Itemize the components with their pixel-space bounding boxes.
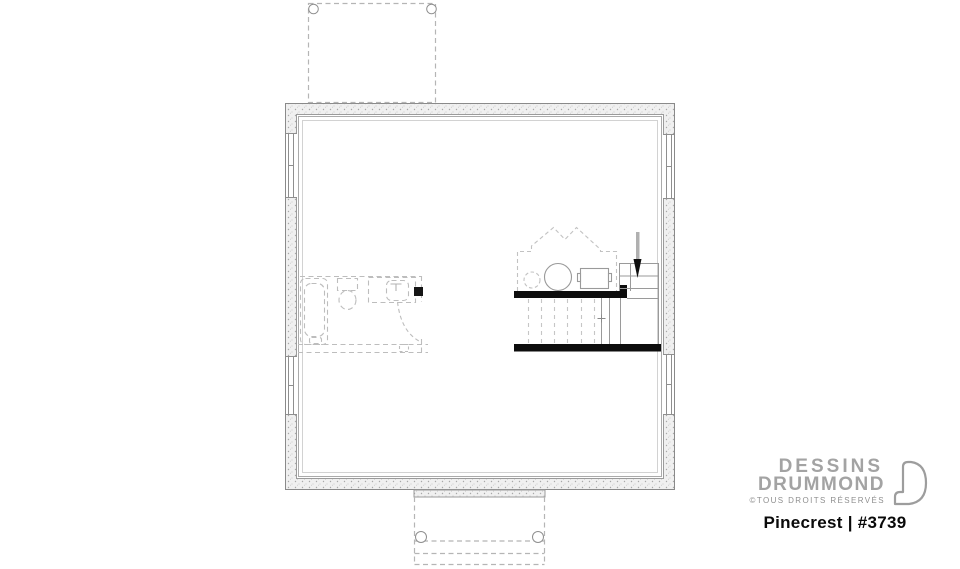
toilet	[338, 279, 358, 310]
porch-above-outline	[309, 4, 436, 103]
copyright-text: ©TOUS DROITS RÉSERVÉS	[750, 496, 885, 506]
vanity-sink	[369, 278, 416, 303]
porch-post	[427, 4, 437, 14]
rear-porch-outline	[415, 497, 545, 565]
brand-name-line2: DRUMMOND	[750, 476, 885, 494]
mechanical-unit	[578, 269, 612, 289]
future-bathroom	[298, 276, 428, 353]
porch-post	[533, 532, 544, 543]
bathtub	[301, 279, 328, 345]
porch-footing-step	[414, 490, 545, 497]
title-block: DESSINS DRUMMOND ©TOUS DROITS RÉSERVÉS P…	[752, 458, 928, 533]
basement-windows	[286, 133, 674, 415]
drummond-d-icon	[890, 460, 928, 506]
mechanical-room	[518, 228, 617, 292]
stair-wall	[514, 291, 627, 298]
floor-plan-page: DESSINS DRUMMOND ©TOUS DROITS RÉSERVÉS P…	[0, 0, 960, 569]
stair-wall	[514, 344, 661, 352]
water-heater	[545, 264, 572, 291]
plan-title: Pinecrest | #3739	[752, 513, 928, 533]
basement-window	[663, 354, 674, 415]
bathroom-door-swing	[398, 302, 420, 341]
porch-post	[309, 4, 319, 14]
basement-window	[286, 356, 297, 415]
door-post-black	[414, 287, 423, 296]
porch-above-posts	[309, 4, 437, 14]
basement-window	[663, 134, 674, 199]
basement-window	[286, 133, 297, 198]
stair-treads-dashed	[529, 299, 595, 343]
stair-down-arrow	[634, 232, 642, 278]
floor-drain	[524, 272, 540, 288]
foundation-wall	[285, 103, 675, 497]
porch-post	[416, 532, 427, 543]
staircase	[514, 232, 661, 352]
stair-break-mark	[598, 315, 606, 323]
door-jamb	[400, 345, 409, 352]
